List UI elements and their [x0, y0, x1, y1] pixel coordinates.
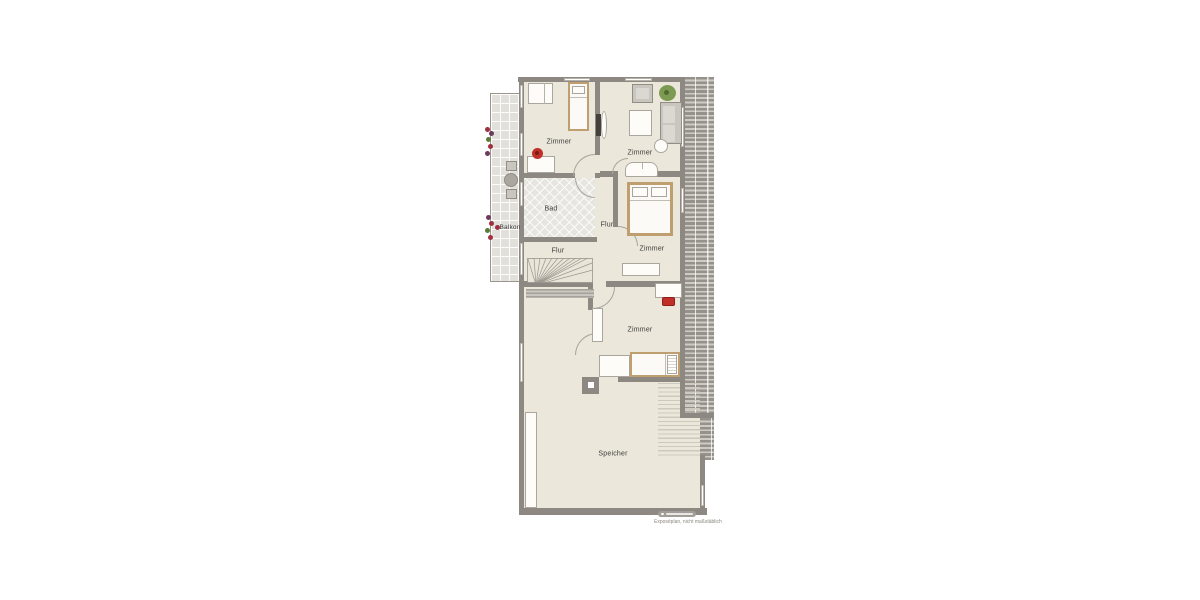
- roof-slope-area: [658, 383, 700, 457]
- sofa: [660, 102, 682, 144]
- column-core: [588, 382, 594, 388]
- bed-lower: [630, 352, 680, 377]
- window: [520, 343, 523, 382]
- room-label-bad: Bad: [544, 206, 557, 213]
- dresser: [599, 355, 630, 377]
- page: Zimmer Zimmer Bad Flur Zimmer Flur Zimme…: [0, 0, 1200, 600]
- double-bed: [627, 182, 673, 236]
- red-plant-core: [535, 151, 539, 155]
- balcony-table: [504, 173, 518, 187]
- watermark-caption: Exposéplan, nicht maßstäblich: [654, 519, 722, 525]
- desk: [655, 283, 682, 298]
- balcony-floor: [490, 93, 519, 282]
- watermark-dot-icon: [661, 513, 664, 516]
- watermark-text-line: [666, 513, 693, 515]
- room-label-balkon: Balkon: [499, 225, 520, 232]
- roof-hatch-lower: [700, 418, 714, 460]
- window: [520, 182, 523, 206]
- wardrobe-door-line: [544, 83, 545, 104]
- room-label-zimmer-top-left: Zimmer: [547, 139, 572, 146]
- room-label-zimmer-top-right: Zimmer: [628, 150, 653, 157]
- loveseat: [625, 162, 658, 177]
- room-label-zimmer-lower: Zimmer: [628, 327, 653, 334]
- wardrobe: [528, 83, 553, 104]
- window: [701, 485, 704, 506]
- storage-shelves: [525, 412, 537, 508]
- tv-board: [601, 111, 607, 139]
- wardrobe-tall: [592, 308, 603, 342]
- coffee-table: [629, 110, 652, 136]
- red-chair: [662, 297, 675, 306]
- single-bed: [568, 82, 589, 131]
- balcony-chair: [506, 161, 517, 171]
- window: [564, 78, 590, 81]
- sideboard: [622, 263, 660, 276]
- balcony-plant-icon: [485, 127, 496, 160]
- room-label-speicher: Speicher: [598, 451, 627, 458]
- staircase: [527, 258, 593, 283]
- window: [520, 85, 523, 108]
- room-label-flur-upper: Flur: [601, 222, 614, 229]
- wall-right-step: [680, 413, 714, 418]
- room-label-flur-lower: Flur: [552, 248, 565, 255]
- roof-hatch-right: [684, 77, 714, 418]
- window: [520, 243, 523, 275]
- watermark-badge: [658, 511, 696, 517]
- balkon-flower-icon: [495, 225, 500, 230]
- floor-plan: Zimmer Zimmer Bad Flur Zimmer Flur Zimme…: [478, 65, 730, 533]
- balcony-chair: [506, 189, 517, 199]
- armchair: [632, 84, 653, 103]
- window: [681, 188, 684, 213]
- wall-bad-flur: [523, 237, 597, 242]
- room-label-zimmer-mid-right: Zimmer: [640, 246, 665, 253]
- green-plant-core: [664, 90, 669, 95]
- side-table: [654, 139, 668, 153]
- desk: [527, 156, 555, 173]
- window: [520, 133, 523, 156]
- wall-z3-left: [613, 171, 618, 227]
- window: [625, 78, 652, 81]
- balcony-plant-icon: [485, 215, 496, 248]
- wall-top: [518, 77, 685, 82]
- knee-wall-band: [526, 289, 594, 298]
